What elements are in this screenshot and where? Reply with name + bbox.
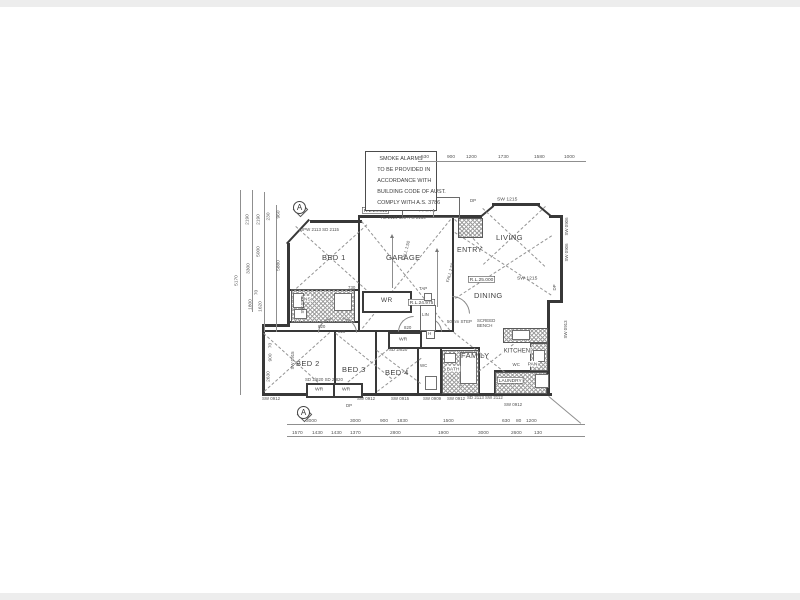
opening-label: SW 0912 [504, 402, 522, 407]
room-label-wr-bed3: WR [342, 386, 350, 392]
room-label-wr-bed1: WR [381, 297, 393, 304]
dim-line-bottom [287, 424, 585, 425]
note-line: TO BE PROVIDED IN [377, 166, 425, 172]
dim-bottom: 2600 [511, 430, 522, 435]
dim-bottom: 1570 [292, 430, 303, 435]
room-label-dining: DINING [474, 291, 503, 300]
laundry-tub [535, 374, 549, 388]
room-label-living: LIVING [496, 233, 523, 242]
room-label-wc: WC [420, 363, 427, 368]
dim-left: 230 [265, 210, 270, 223]
room-label-kitchen: KITCHEN [503, 347, 531, 354]
downpipe-label: DP [470, 198, 476, 203]
dim-bottom: 1430 [312, 430, 323, 435]
downpipe-label: DP [552, 284, 557, 290]
door-size: 820 [338, 329, 345, 334]
dim-left: 900 [267, 351, 272, 364]
opening-label: SW 0913 [563, 320, 568, 338]
tap-symbol [424, 293, 432, 301]
dim-left: 960 [275, 208, 280, 221]
room-label-wc2: WC [512, 362, 520, 367]
dim-bottom: 1500 [443, 418, 454, 423]
room-label-bed2: BED 2 [296, 359, 320, 368]
room-label-bed3: BED 3 [342, 365, 366, 374]
door-size: 820 [404, 325, 411, 330]
dim-bottom: 2800 [390, 430, 401, 435]
dim-left: 2630 [265, 370, 270, 383]
door-size: 820 [318, 324, 325, 329]
floorplan-page: { "colors": { "ink": "#3b3b3b", "paper":… [0, 0, 800, 600]
room-label-family: FAMILY [461, 351, 490, 360]
opening-label: SW 0912 [262, 396, 280, 401]
opening-label: SD 2113 SW 2112 [467, 395, 503, 400]
dim-bottom: 3000 [350, 418, 361, 423]
dim-line-top [418, 161, 586, 162]
sliding-door-spec: SD 2/820 [389, 347, 407, 352]
opening-label: SW 0912 [357, 396, 375, 401]
roof-dash-line [376, 350, 421, 384]
dim-bottom: 130 [534, 430, 542, 435]
room-label-pan: PAN [527, 361, 538, 367]
toilet [425, 376, 437, 390]
dim-left: 3300 [245, 262, 250, 275]
dim-top: 530 [421, 154, 429, 159]
fall-arrow-head [390, 234, 394, 238]
linen-cupboard [420, 305, 436, 331]
room-label-bath: BATH [446, 366, 460, 372]
floorplan-drawing: WR WR WR WR BED 1 BED 2 BED 3 BED 4 GARA… [0, 0, 800, 600]
dim-left: 1800 [247, 298, 252, 311]
wall-segment [375, 332, 377, 393]
bench-annotation: BENCH [477, 323, 492, 328]
tap-annotation: TAP [419, 286, 427, 291]
dim-left: 2190 [244, 213, 249, 226]
dim-top: 1730 [498, 154, 509, 159]
opening-label: SW 0909 [423, 396, 441, 401]
dim-bottom: 1430 [331, 430, 342, 435]
step-annotation: 50mm STEP [447, 319, 472, 324]
room-label-lin: LIN [422, 312, 429, 317]
dim-left: 70 [253, 286, 258, 299]
wall-segment [560, 215, 563, 302]
dim-left: 5880 [275, 259, 280, 272]
wall-segment [417, 347, 480, 349]
opening-label: SW 1215 [497, 196, 517, 202]
dim-line-left [240, 190, 241, 395]
shower-base [334, 293, 352, 311]
opening-label: SW 1215 [517, 275, 537, 281]
level-floor: R.L.25.000 [468, 276, 495, 283]
dim-bottom: 80 [516, 418, 521, 423]
section-marker-a-top-icon: A [293, 201, 306, 214]
note-leader-line [433, 209, 434, 217]
dim-top: 900 [447, 154, 455, 159]
room-label-wr-bed2: WR [315, 386, 323, 392]
wall-segment [287, 243, 290, 326]
wall-segment [310, 220, 362, 223]
opening-label: SW 0909 [300, 295, 305, 313]
hinge-label: H [428, 331, 431, 336]
basin [444, 353, 456, 363]
opening-label: DPW 2113 SD 2115 [300, 227, 339, 232]
wardrobe-bed2: WR [306, 383, 336, 398]
room-label-wr-hall: WR [399, 336, 407, 342]
dim-left: 5000 [255, 245, 260, 258]
dim-line-bottom [287, 436, 585, 437]
room-label-bed4: BED 4 [385, 368, 409, 377]
opening-label: SW 0906 [564, 243, 569, 261]
section-marker-a-bottom-icon: A [297, 406, 310, 419]
dim-bottom: 1200 [526, 418, 537, 423]
dim-bottom: 3000 [478, 430, 489, 435]
opening-label: SW 0912 [447, 396, 465, 401]
room-label-laundry: LAUNDRY [497, 377, 523, 384]
room-label-entry: ENTRY [457, 247, 483, 254]
downpipe-label: DP [346, 403, 352, 408]
path-line [548, 396, 581, 424]
door-arc [452, 296, 470, 314]
kitchen-sink [512, 330, 530, 340]
entry-step-hatch [458, 218, 483, 238]
dim-top: 1200 [466, 154, 477, 159]
dim-top: 1000 [564, 154, 575, 159]
patio-spec: RL 2124 600+FG 2154 [381, 215, 426, 220]
opening-label: SW 0915 [290, 351, 295, 369]
note-line: COMPLY WITH A.S. 3786 [377, 199, 425, 205]
dim-left: 1620 [257, 300, 262, 313]
dim-left: 2190 [255, 213, 260, 226]
opening-label: SW 0915 [391, 396, 409, 401]
wall-segment [417, 347, 419, 393]
note-line: BUILDING CODE OF AUST. [377, 188, 425, 194]
fall-arrow-head [435, 248, 439, 252]
dim-bottom: 630 [502, 418, 510, 423]
dim-bottom: 1370 [350, 430, 361, 435]
note-line: ACCORDANCE WITH [377, 177, 425, 183]
wall-segment [492, 203, 540, 206]
dim-left: 5170 [233, 274, 238, 287]
sliding-door-spec: SD 2/820 SD 2/820 [305, 377, 343, 382]
dim-bottom: 900 [380, 418, 388, 423]
hinge-marker: H [426, 330, 435, 339]
dim-bottom: 1830 [397, 418, 408, 423]
dim-bottom: 1900 [438, 430, 449, 435]
wardrobe-bed1: WR [362, 291, 412, 313]
smoke-alarm-note: SMOKE ALARMS TO BE PROVIDED IN ACCORDANC… [365, 151, 437, 211]
fall-arrow-line [392, 238, 393, 288]
opening-label: SW 0906 [564, 217, 569, 235]
room-label-bed1: BED 1 [322, 253, 346, 262]
fall-arrow-line [437, 252, 438, 307]
wall-segment [358, 218, 360, 331]
door-size: 730 [348, 285, 355, 290]
dim-top: 1580 [534, 154, 545, 159]
